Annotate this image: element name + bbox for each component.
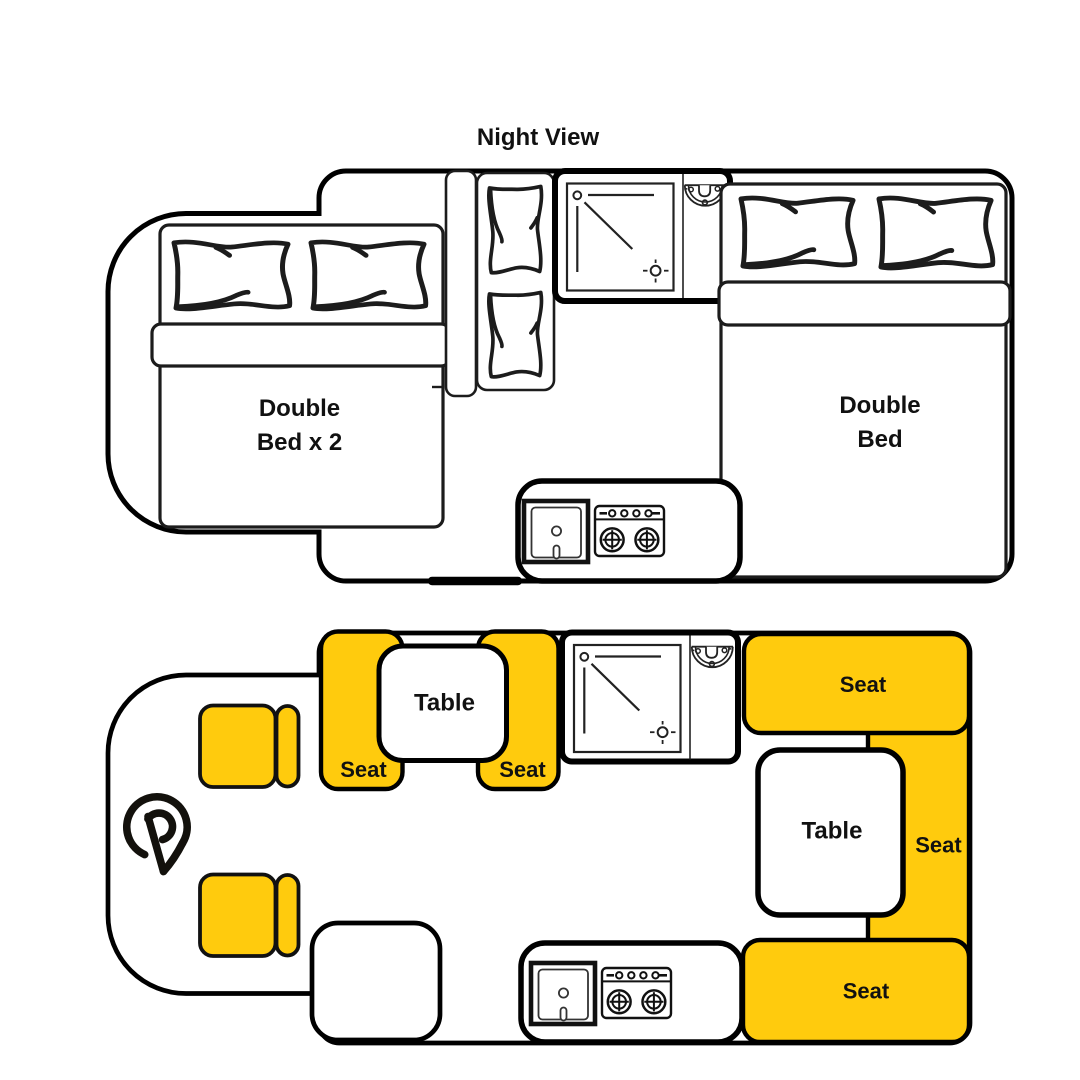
svg-text:Bed: Bed	[857, 426, 902, 453]
svg-text:Seat: Seat	[499, 757, 546, 782]
svg-text:Seat: Seat	[840, 672, 887, 697]
svg-text:Bed x 2: Bed x 2	[257, 429, 342, 456]
svg-text:Seat: Seat	[843, 979, 890, 1004]
svg-text:Table: Table	[802, 818, 863, 845]
svg-text:Table: Table	[414, 690, 475, 717]
svg-text:Night View: Night View	[477, 124, 600, 151]
svg-text:Double: Double	[259, 395, 340, 422]
svg-text:Seat: Seat	[340, 757, 387, 782]
svg-text:Seat: Seat	[915, 833, 962, 858]
svg-text:Double: Double	[839, 392, 920, 419]
